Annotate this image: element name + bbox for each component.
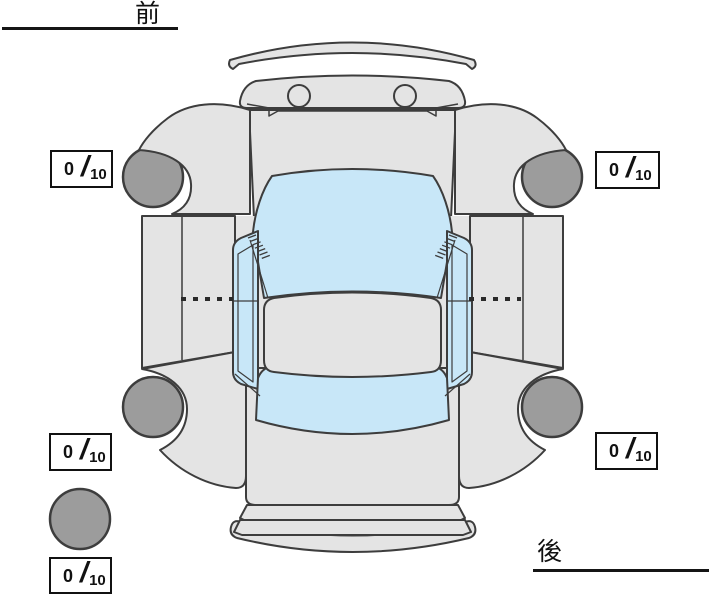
- right-door-panel: [470, 216, 563, 368]
- score-value: 0: [609, 161, 619, 179]
- score-separator: /: [80, 560, 88, 586]
- front-underline: [2, 27, 178, 30]
- score-box-spare: 0/10: [49, 557, 112, 594]
- rear-label: 後: [537, 540, 562, 565]
- score-box-front-left: 0/10: [50, 150, 113, 188]
- score-value: 0: [609, 442, 619, 460]
- score-separator: /: [626, 436, 634, 462]
- score-box-rear-left: 0/10: [49, 433, 112, 471]
- windshield: [253, 169, 452, 298]
- score-separator: /: [80, 437, 88, 463]
- car-top-view-icon: [0, 0, 711, 600]
- score-value: 0: [64, 160, 74, 178]
- front-grille-panel: [240, 76, 465, 109]
- score-box-rear-right: 0/10: [595, 432, 658, 470]
- front-label: 前: [135, 2, 160, 27]
- car-inspection-diagram: 前 後 0/10 0/10 0/10 0/10 0/10: [0, 0, 711, 600]
- score-value: 0: [63, 567, 73, 585]
- score-max: 10: [89, 450, 106, 469]
- score-max: 10: [90, 167, 107, 186]
- front-bumper: [229, 43, 476, 70]
- score-max: 10: [635, 168, 652, 187]
- score-separator: /: [81, 154, 89, 180]
- rear-underline: [533, 569, 709, 572]
- score-separator: /: [626, 155, 634, 181]
- spare-tire-icon: [50, 489, 110, 549]
- hood-left-circle: [288, 85, 310, 107]
- rear-left-tire-icon: [123, 377, 183, 437]
- score-value: 0: [63, 443, 73, 461]
- score-box-front-right: 0/10: [595, 151, 660, 189]
- rear-trim-lower: [234, 520, 471, 535]
- left-door-panel: [142, 216, 235, 368]
- score-max: 10: [635, 449, 652, 468]
- roof-panel: [264, 293, 441, 378]
- score-max: 10: [89, 573, 106, 592]
- hood-right-circle: [394, 85, 416, 107]
- rear-trim-upper: [240, 505, 465, 521]
- rear-right-tire-icon: [522, 377, 582, 437]
